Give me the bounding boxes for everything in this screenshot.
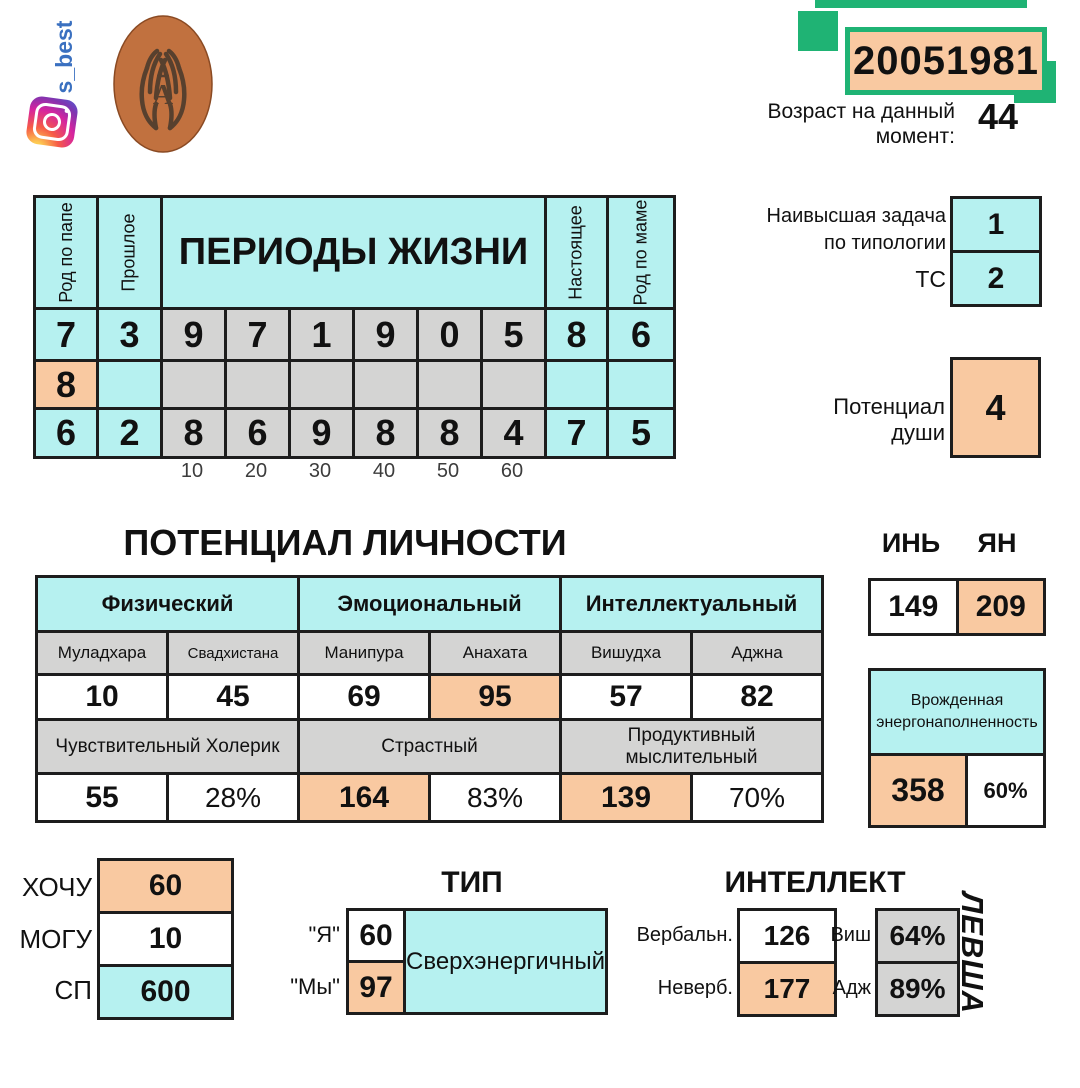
ts-value: 2	[953, 253, 1039, 304]
table-cell-empty	[547, 362, 609, 410]
vishudha-label: Виш	[820, 924, 871, 947]
decade-tick: 40	[352, 460, 416, 483]
table-cell-empty	[419, 362, 483, 410]
decade-axis: 10 20 30 40 50 60	[160, 460, 544, 483]
table-cell: 6	[609, 310, 676, 362]
sp-label: СП	[0, 975, 92, 1006]
temperament-header: Страстный	[300, 721, 562, 775]
want-value: 60	[100, 861, 231, 914]
energy-box: Врожденная энергонаполненность 358 60%	[868, 668, 1046, 828]
table-cell: 5	[483, 310, 547, 362]
we-label: "Мы"	[276, 974, 340, 1000]
nonverbal-label: Неверб.	[630, 977, 733, 1000]
table-cell: 8	[355, 410, 419, 459]
table-cell: 2	[99, 410, 163, 459]
table-cell: 8	[547, 310, 609, 362]
highest-task-label: Наивысшая задача по типологии	[758, 203, 946, 257]
green-square-decoration	[798, 11, 838, 51]
chakra-value: 69	[300, 676, 431, 721]
we-value: 97	[349, 963, 406, 1015]
resources-box: 60 10 600	[97, 858, 234, 1020]
table-cell-empty	[99, 362, 163, 410]
chakra-value: 45	[169, 676, 300, 721]
sp-value: 600	[100, 967, 231, 1017]
table-cell: 8	[163, 410, 227, 459]
total-value-highlight: 164	[300, 775, 431, 823]
total-value: 55	[38, 775, 169, 823]
hands-logo: А	[112, 14, 214, 154]
table-cell: 9	[291, 410, 355, 459]
i-label: "Я"	[288, 922, 340, 948]
table-cell: 0	[419, 310, 483, 362]
instagram-icon	[25, 95, 79, 149]
total-percent: 70%	[693, 775, 824, 823]
personality-table: Физический Эмоциональный Интеллектуальны…	[35, 575, 824, 823]
verbal-label: Вербальн.	[630, 924, 733, 947]
table-cell: 5	[609, 410, 676, 459]
total-percent: 83%	[431, 775, 562, 823]
table-cell: 6	[227, 410, 291, 459]
chakra-value-highlight: 95	[431, 676, 562, 721]
temperament-header: Чувствительный Холерик	[38, 721, 300, 775]
table-cell-empty	[483, 362, 547, 410]
table-cell: 8	[419, 410, 483, 459]
table-cell: 7	[547, 410, 609, 459]
col-header-father: Род по папе	[36, 198, 99, 310]
yang-label: ЯН	[954, 528, 1040, 559]
can-value: 10	[100, 914, 231, 967]
birth-date-box: 20051981	[845, 27, 1047, 95]
age-value: 44	[968, 96, 1028, 138]
age-label: Возраст на данный момент:	[755, 100, 955, 150]
group-header: Физический	[38, 578, 300, 633]
table-cell: 7	[36, 310, 99, 362]
col-header-past: Прошлое	[99, 198, 163, 310]
decade-tick: 50	[416, 460, 480, 483]
highest-task-value: 1	[953, 199, 1039, 253]
table-cell-empty	[609, 362, 676, 410]
i-value: 60	[349, 911, 406, 963]
table-cell-empty	[291, 362, 355, 410]
intellect-title: ИНТЕЛЛЕКТ	[710, 866, 920, 900]
yin-value: 149	[871, 581, 959, 633]
life-periods-title: ПЕРИОДЫ ЖИЗНИ	[163, 198, 547, 310]
ts-label: ТС	[860, 266, 946, 293]
type-box: 60 Сверхэнергичный 97	[346, 908, 608, 1015]
group-header: Интеллектуальный	[562, 578, 824, 633]
table-cell: 9	[355, 310, 419, 362]
chakra-header: Манипура	[300, 633, 431, 676]
chakra-value: 10	[38, 676, 169, 721]
logo-letter: А	[153, 80, 174, 111]
energy-value: 358	[871, 756, 968, 825]
decade-tick: 30	[288, 460, 352, 483]
table-cell: 4	[483, 410, 547, 459]
yin-label: ИНЬ	[868, 528, 954, 559]
ajna-label: Адж	[820, 977, 871, 1000]
decade-tick: 10	[160, 460, 224, 483]
green-bar-decoration	[815, 0, 1027, 8]
can-label: МОГУ	[0, 924, 92, 955]
chakra-header: Муладхара	[38, 633, 169, 676]
table-cell: 9	[163, 310, 227, 362]
total-value-highlight: 139	[562, 775, 693, 823]
life-periods-table: Род по папе Прошлое ПЕРИОДЫ ЖИЗНИ Настоя…	[33, 195, 676, 459]
soul-potential-label: Потенциал души	[780, 394, 945, 446]
typology-boxes: 1 2	[950, 196, 1042, 307]
chakra-value: 82	[693, 676, 824, 721]
chakra-header: Вишудха	[562, 633, 693, 676]
col-header-mother: Род по маме	[609, 198, 676, 310]
energy-label: Врожденная энергонаполненность	[871, 671, 1043, 756]
energy-percent: 60%	[968, 756, 1043, 825]
soul-potential-value: 4	[950, 357, 1041, 458]
yin-yang-box: 149 209	[868, 578, 1046, 636]
temperament-header: Продуктивный мыслительный	[562, 721, 824, 775]
table-cell-empty	[355, 362, 419, 410]
group-header: Эмоциональный	[300, 578, 562, 633]
yang-value: 209	[959, 581, 1044, 633]
chakra-header: Аджна	[693, 633, 824, 676]
decade-tick: 60	[480, 460, 544, 483]
type-name: Сверхэнергичный	[406, 911, 608, 1015]
want-label: ХОЧУ	[0, 872, 92, 903]
col-header-present: Настоящее	[547, 198, 609, 310]
chakra-header: Анахата	[431, 633, 562, 676]
instagram-handle: s_best	[51, 11, 77, 103]
table-cell-empty	[163, 362, 227, 410]
chakra-header: Свадхистана	[169, 633, 300, 676]
table-cell: 3	[99, 310, 163, 362]
table-cell-empty	[227, 362, 291, 410]
table-cell: 1	[291, 310, 355, 362]
total-percent: 28%	[169, 775, 300, 823]
table-cell-highlight: 8	[36, 362, 99, 410]
personality-title: ПОТЕНЦИАЛ ЛИЧНОСТИ	[40, 522, 650, 564]
chakra-value: 57	[562, 676, 693, 721]
type-title: ТИП	[372, 866, 572, 900]
table-cell: 7	[227, 310, 291, 362]
decade-tick: 20	[224, 460, 288, 483]
table-cell: 6	[36, 410, 99, 459]
handedness-label: ЛЕВША	[927, 890, 1017, 1015]
